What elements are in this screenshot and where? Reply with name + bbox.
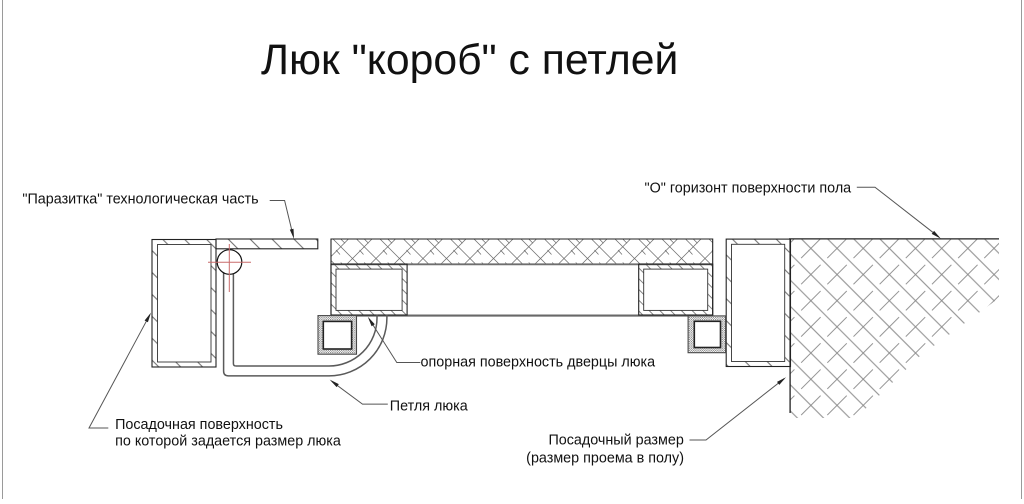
svg-text:"Паразитка" технологическая ча: "Паразитка" технологическая часть [22,192,258,208]
svg-text:Люк "короб" с петлей: Люк "короб" с петлей [261,36,678,84]
svg-text:опорная поверхность дверцы люк: опорная поверхность дверцы люка [421,354,656,370]
svg-text:(размер проема в полу): (размер проема в полу) [526,450,684,466]
svg-text:Посадочный размер: Посадочный размер [548,433,683,449]
svg-text:по которой задается размер люк: по которой задается размер люка [115,434,341,450]
svg-text:Петля люка: Петля люка [390,399,468,415]
svg-text:"О" горизонт поверхности пола: "О" горизонт поверхности пола [645,181,852,197]
svg-text:Посадочная поверхность: Посадочная поверхность [115,417,283,433]
